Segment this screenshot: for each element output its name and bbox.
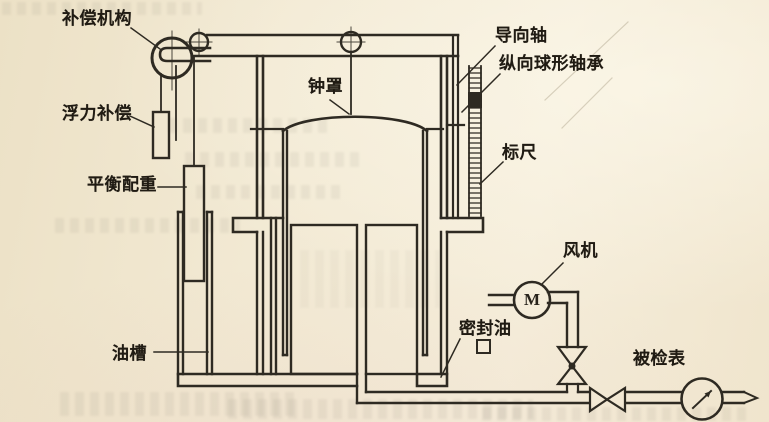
label-longitudinal-spherical-bearing: 纵向球形轴承 xyxy=(499,54,604,74)
label-bell-jar: 钟罩 xyxy=(308,77,343,97)
oil-tank-walls xyxy=(178,212,212,374)
label-scale-ruler: 标尺 xyxy=(502,143,537,163)
motor-symbol: M xyxy=(523,290,541,310)
valve-horizontal xyxy=(590,388,625,411)
sealing-channel-walls xyxy=(257,218,447,374)
bell-jar xyxy=(251,117,443,355)
counterweight xyxy=(184,166,204,281)
flow-arrow xyxy=(744,392,757,403)
buoyancy-float xyxy=(153,112,169,158)
inner-tank xyxy=(291,225,417,374)
label-balance-weight: 平衡配重 xyxy=(87,175,157,195)
outer-frame xyxy=(257,56,447,218)
label-meter-under-test: 被检表 xyxy=(633,349,686,369)
label-oil-tank: 油槽 xyxy=(112,344,147,364)
valve-vertical xyxy=(558,347,586,392)
scanned-diagram-page: 补偿机构 浮力补偿 平衡配重 油槽 钟罩 导向轴 纵向球形轴承 标尺 风机 密封… xyxy=(0,0,769,422)
label-compensation-mechanism: 补偿机构 xyxy=(62,9,132,29)
label-buoyancy-compensation: 浮力补偿 xyxy=(62,104,132,124)
pipe-fitting xyxy=(477,340,490,353)
guide-shaft xyxy=(447,36,464,218)
label-guide-shaft: 导向轴 xyxy=(495,26,548,46)
label-sealing-oil: 密封油 xyxy=(459,319,512,339)
tank-bottom xyxy=(178,374,447,386)
scale-ladder xyxy=(468,66,482,216)
pencil-marks xyxy=(545,22,628,128)
meter-gauge xyxy=(682,379,723,420)
outlet-duct xyxy=(357,374,366,403)
main-pipe xyxy=(357,392,744,403)
label-fan: 风机 xyxy=(563,241,598,261)
